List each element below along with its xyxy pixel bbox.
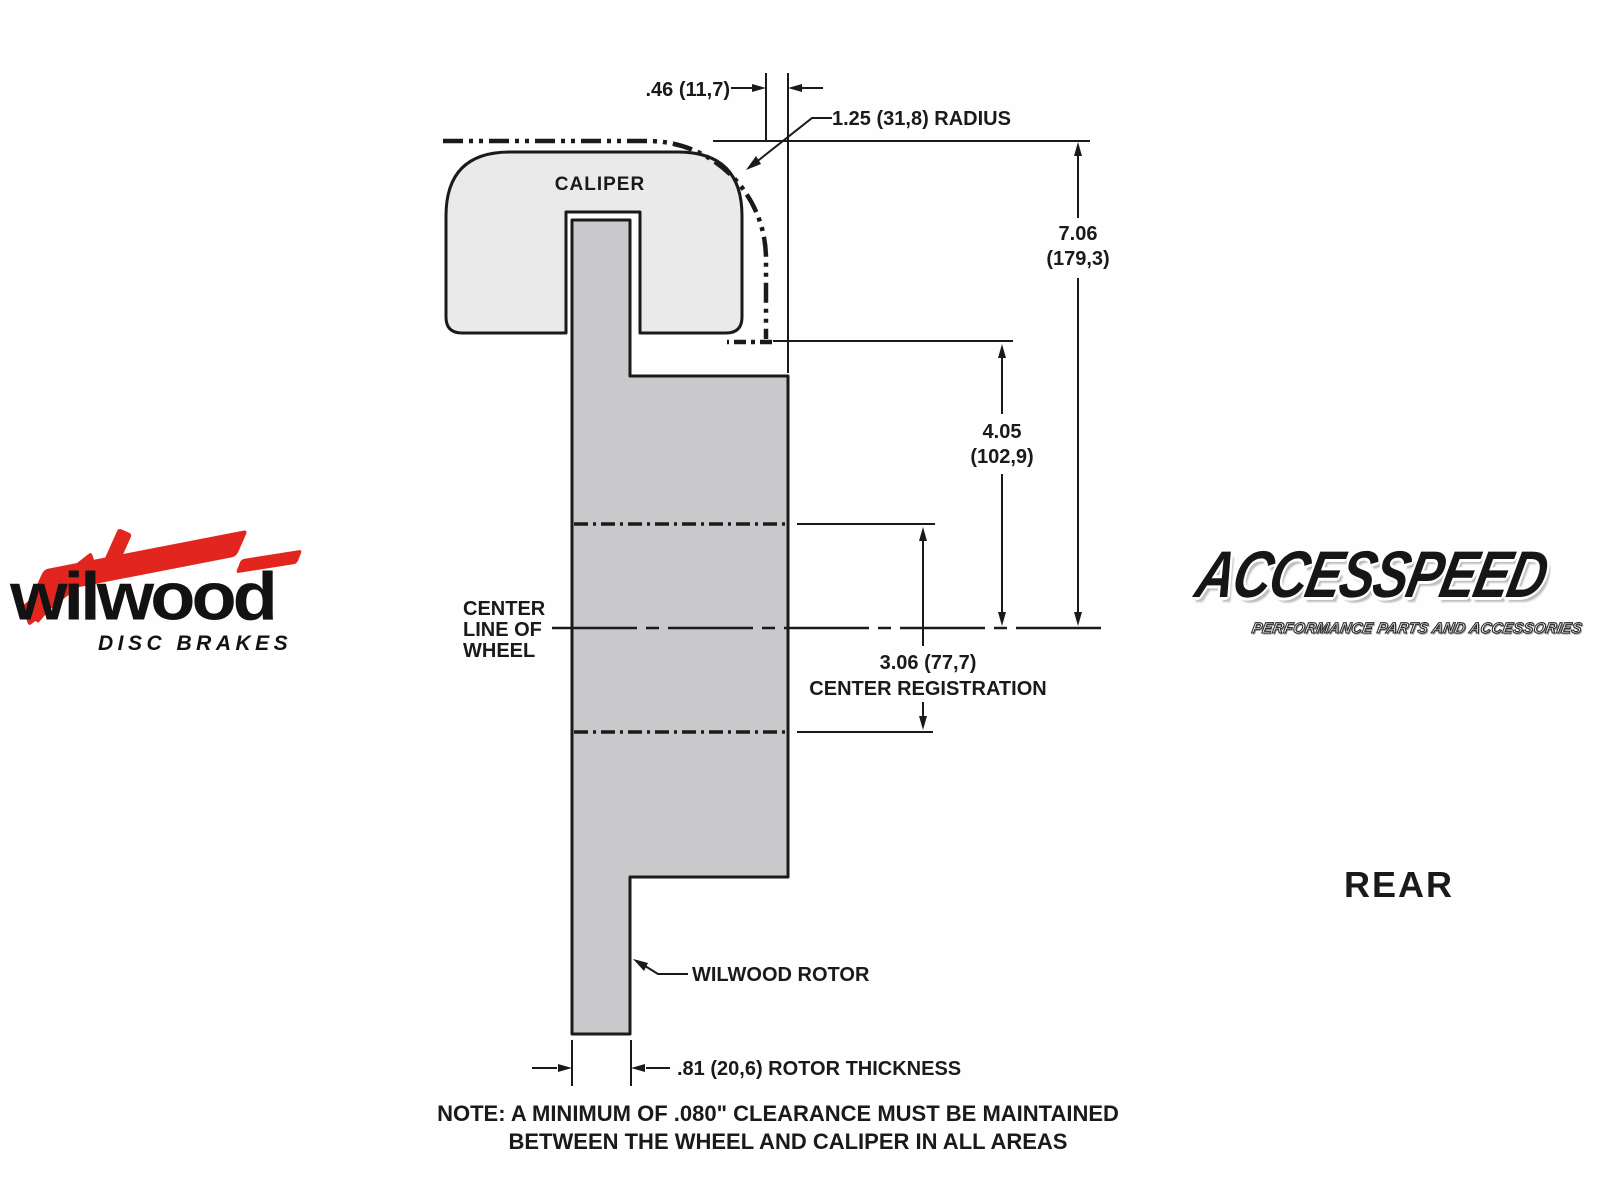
accesspeed-logo: ACCESSPEED PERFORMANCE PARTS AND ACCESSO… [1196, 532, 1586, 652]
caliper-label: CALIPER [555, 174, 645, 195]
radius-label: 1.25 (31,8) RADIUS [832, 108, 1011, 130]
arrowhead [558, 1064, 572, 1072]
view-label: REAR [1344, 864, 1454, 905]
dim-caliper-height-mm: (102,9) [970, 446, 1033, 468]
arrowhead [631, 1064, 645, 1072]
note-line2: BETWEEN THE WHEEL AND CALIPER IN ALL ARE… [509, 1129, 1068, 1154]
dim-center-registration-value: 3.06 (77,7) [880, 652, 977, 674]
wheel-centerline-label-line3: WHEEL [463, 640, 535, 662]
wilwood-wordmark: wilwood [10, 557, 274, 635]
arrowhead [788, 84, 802, 92]
rotor-callout [633, 959, 688, 974]
arrowhead [919, 716, 927, 730]
wheel-centerline-label-line1: CENTER [463, 598, 546, 620]
wilwood-tagline: DISC BRAKES [98, 632, 292, 656]
dim-caliper-offset [731, 73, 823, 373]
arrowhead [752, 84, 766, 92]
arrowhead [998, 612, 1006, 626]
leader-line [750, 118, 832, 167]
arrowhead [633, 959, 648, 971]
arrowhead [1074, 612, 1082, 626]
wheel-centerline-label-line2: LINE OF [463, 619, 542, 641]
dim-overall-height-in: 7.06 [1059, 223, 1098, 245]
arrowhead [1074, 142, 1082, 156]
dim-center-registration-label: CENTER REGISTRATION [809, 678, 1046, 700]
arrowhead [998, 344, 1006, 358]
wheel-centerline-label: CENTER LINE OF WHEEL [463, 598, 546, 662]
dim-caliper-height [773, 341, 1013, 626]
dim-caliper-offset-label: .46 (11,7) [645, 79, 730, 101]
dim-caliper-height-in: 4.05 [983, 421, 1022, 443]
dim-rotor-thickness-label: .81 (20,6) ROTOR THICKNESS [677, 1058, 961, 1080]
accesspeed-tagline: PERFORMANCE PARTS AND ACCESSORIES [1251, 620, 1584, 637]
wilwood-logo: wilwood DISC BRAKES [10, 535, 350, 660]
accesspeed-wordmark: ACCESSPEED [1190, 536, 1554, 612]
technical-drawing-page: .46 (11,7) 1.25 (31,8) RADIUS 7.06 (179,… [0, 0, 1600, 1200]
arrowhead [746, 156, 761, 170]
note-line1: NOTE: A MINIMUM OF .080" CLEARANCE MUST … [437, 1101, 1119, 1126]
dim-overall-height-mm: (179,3) [1046, 248, 1109, 270]
arrowhead [919, 527, 927, 541]
rotor-label: WILWOOD ROTOR [692, 964, 870, 986]
dim-rotor-thickness [532, 1040, 670, 1086]
